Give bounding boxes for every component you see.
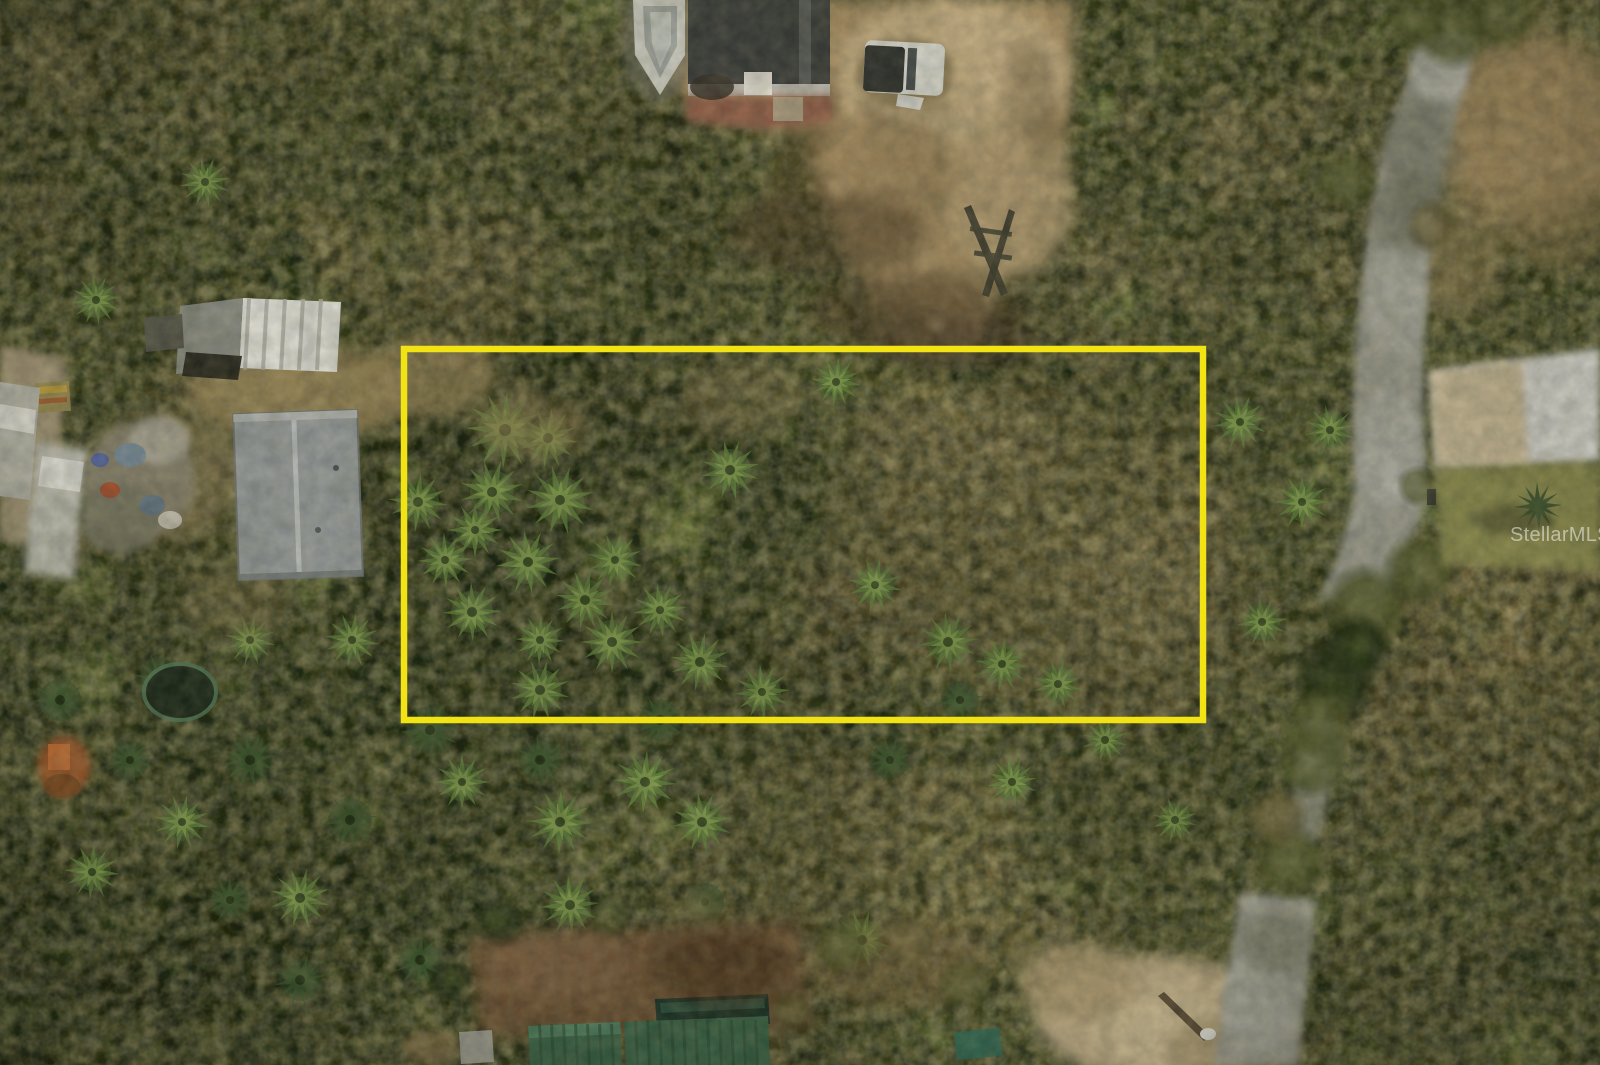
svg-text:StellarMLS: StellarMLS (1510, 524, 1600, 546)
